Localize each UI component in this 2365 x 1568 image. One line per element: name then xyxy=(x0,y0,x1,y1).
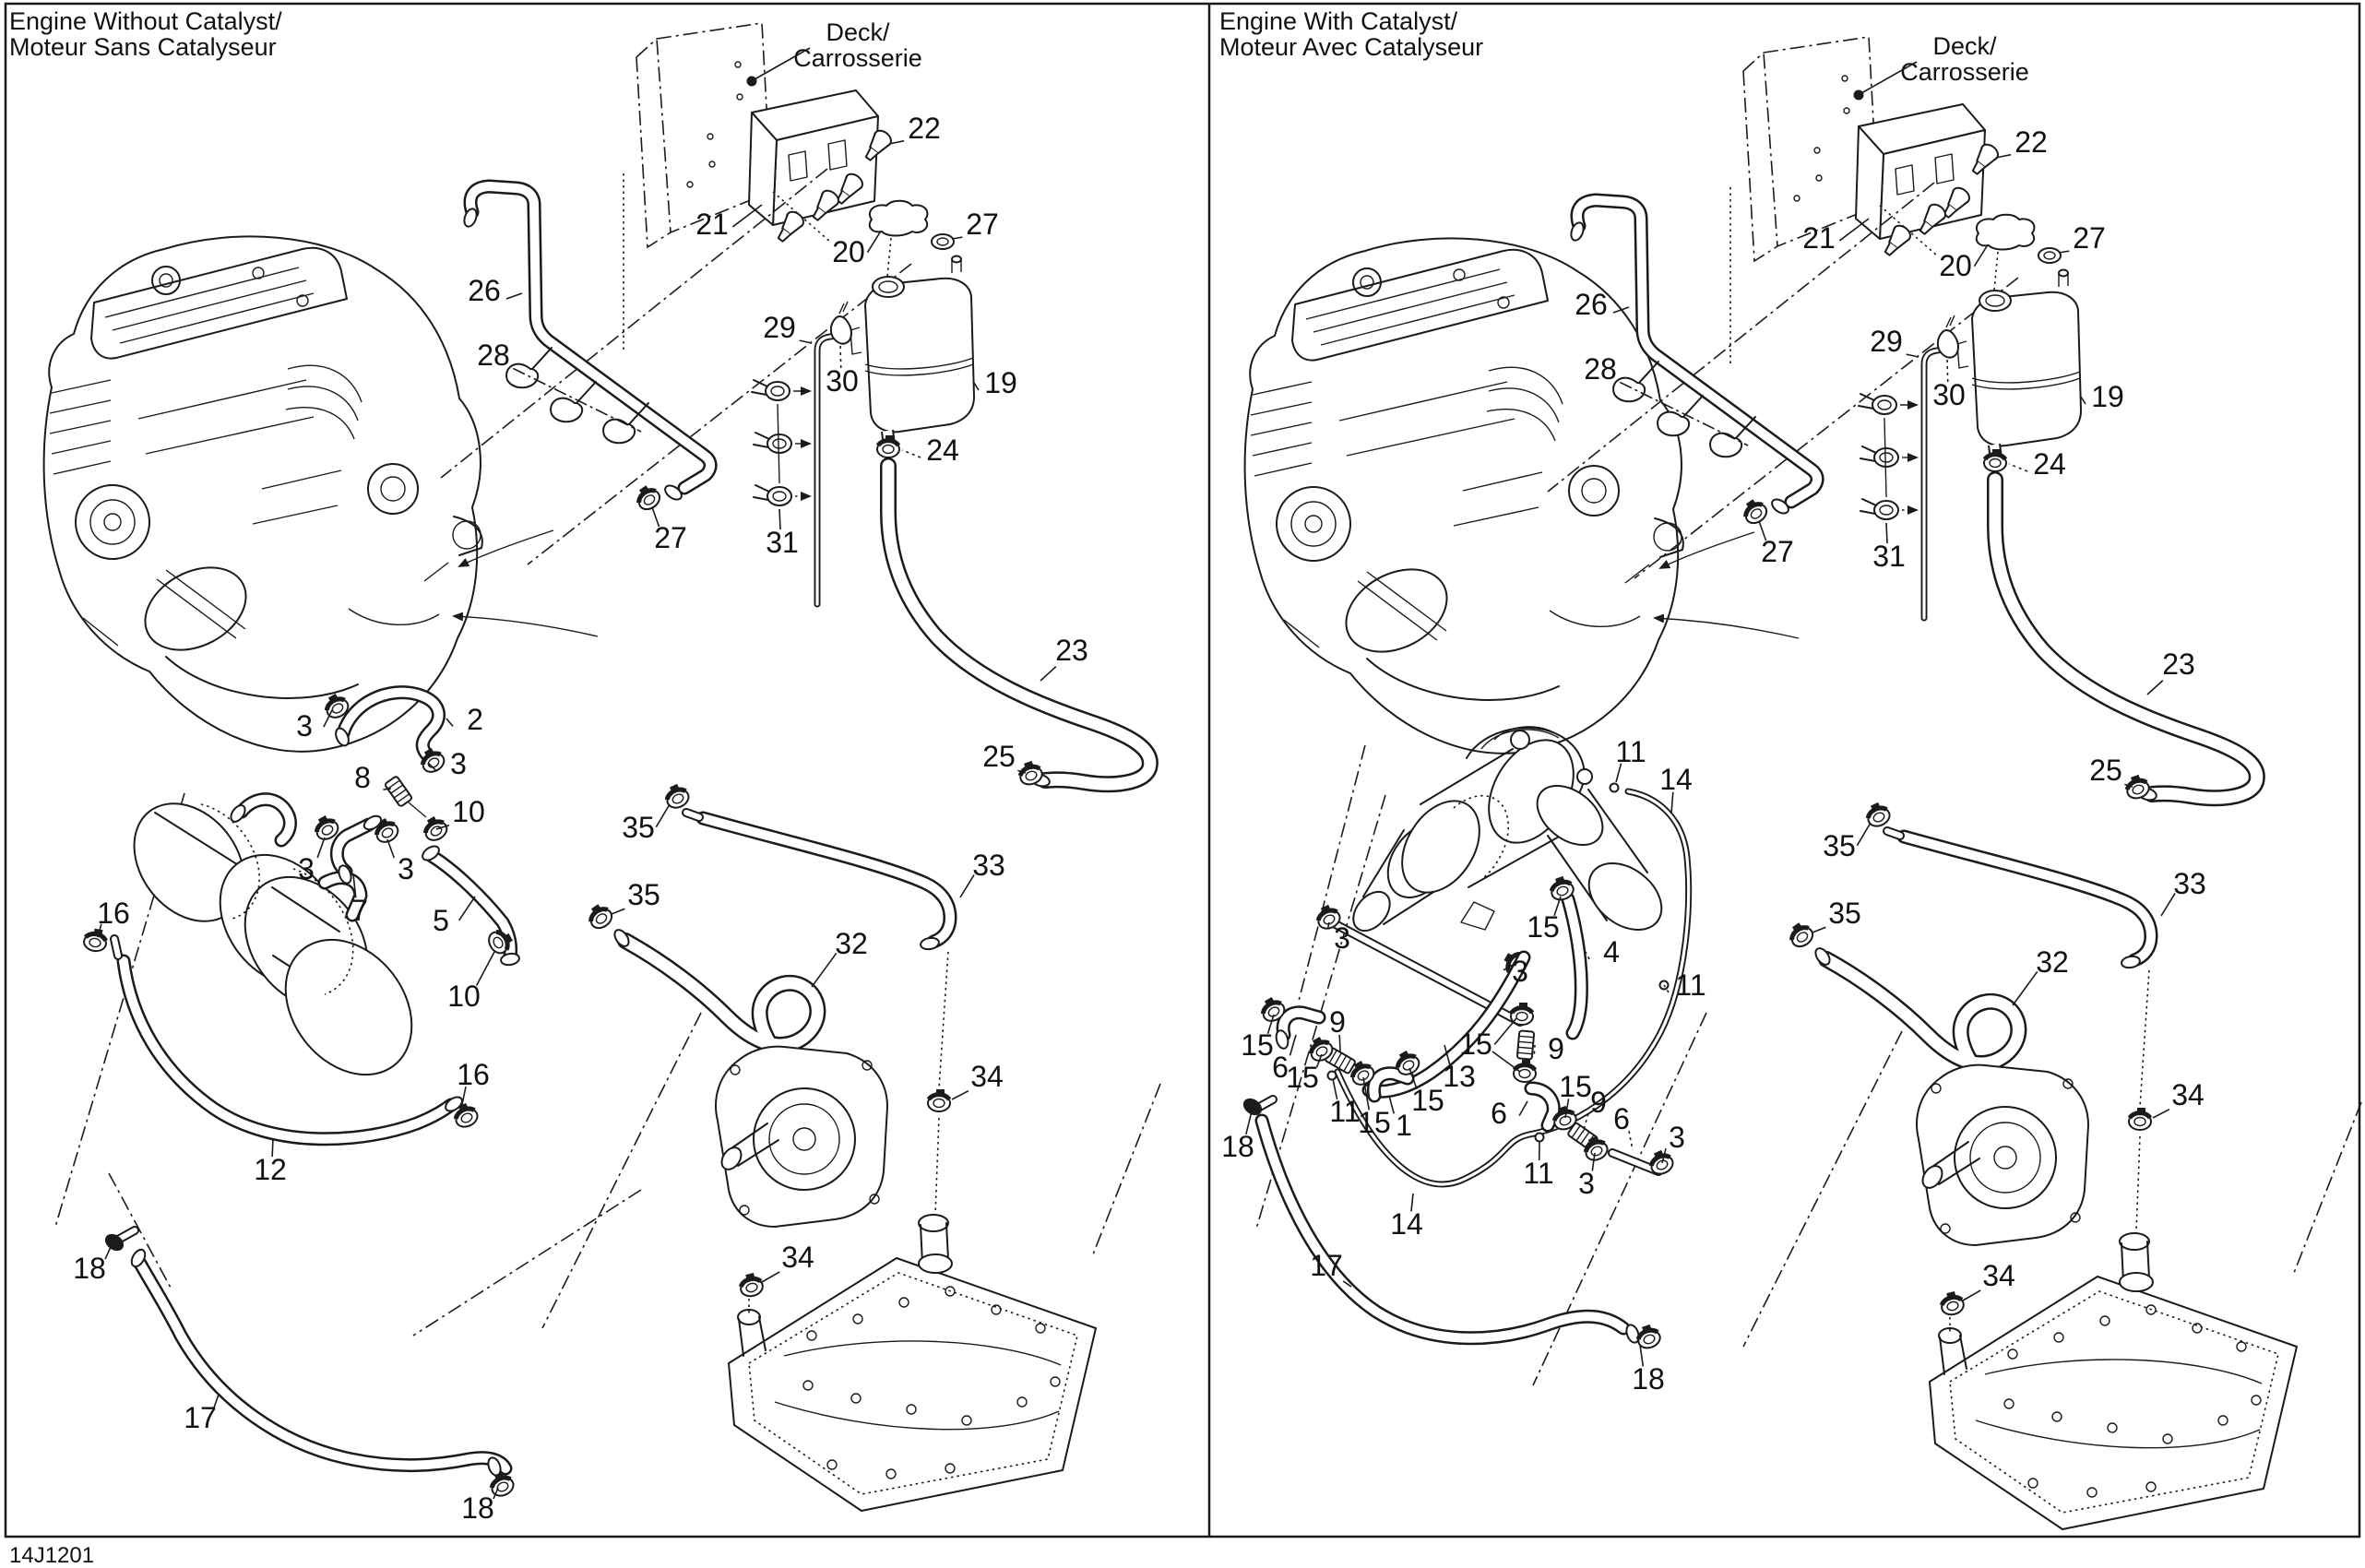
callout-left-10: 10 xyxy=(447,980,481,1013)
callout-right-30: 30 xyxy=(1932,378,1966,411)
callout-right-34: 34 xyxy=(2171,1078,2205,1111)
callout-right-6: 6 xyxy=(1491,1097,1507,1130)
deck-label-line1: Deck/ xyxy=(826,18,890,46)
callout-right-13: 13 xyxy=(1443,1060,1476,1093)
parts-diagram: Engine Without Catalyst/ Moteur Sans Cat… xyxy=(0,0,2365,1568)
callout-right-27: 27 xyxy=(1761,535,1794,568)
clip-11 xyxy=(1610,784,1619,792)
callout-left-33: 33 xyxy=(972,849,1005,882)
callout-left-18: 18 xyxy=(461,1491,494,1525)
callout-left-8: 8 xyxy=(354,761,371,794)
panel-title-line1: Engine Without Catalyst/ xyxy=(9,7,282,35)
callout-left-32: 32 xyxy=(835,927,868,960)
deck-label-line2: Carrosserie xyxy=(793,44,922,72)
callout-right-11: 11 xyxy=(1523,1157,1553,1190)
callout-left-10: 10 xyxy=(452,795,485,828)
callout-left-22: 22 xyxy=(908,112,941,145)
callout-right-1: 1 xyxy=(1396,1109,1412,1142)
callout-left-3: 3 xyxy=(296,709,313,742)
callout-right-4: 4 xyxy=(1603,935,1620,968)
callout-right-11: 11 xyxy=(1675,968,1705,1002)
callout-right-15: 15 xyxy=(1411,1084,1444,1117)
callout-right-32: 32 xyxy=(2036,945,2069,979)
callout-left-16: 16 xyxy=(457,1058,490,1091)
callout-right-34: 34 xyxy=(1982,1259,2015,1292)
callout-left-30: 30 xyxy=(826,364,859,398)
callout-right-9: 9 xyxy=(1548,1032,1564,1065)
callout-right-26: 26 xyxy=(1575,288,1608,321)
callout-left-3: 3 xyxy=(398,852,414,885)
callout-left-20: 20 xyxy=(832,235,865,268)
callout-right-28: 28 xyxy=(1584,352,1617,386)
callout-right-15: 15 xyxy=(1559,1070,1592,1103)
callout-right-15: 15 xyxy=(1286,1061,1319,1094)
callout-left-25: 25 xyxy=(982,740,1016,773)
callout-right-3: 3 xyxy=(1578,1167,1595,1200)
callout-right-27: 27 xyxy=(2073,221,2106,255)
callout-left-28: 28 xyxy=(477,339,510,372)
callout-right-15: 15 xyxy=(1358,1106,1391,1139)
panel-title-line1: Engine With Catalyst/ xyxy=(1219,7,1458,35)
callout-leader xyxy=(383,789,391,790)
callout-right-19: 19 xyxy=(2091,380,2124,413)
callout-right-35: 35 xyxy=(1823,829,1856,862)
figure-code: 14J1201 xyxy=(9,1543,94,1568)
callout-left-35: 35 xyxy=(622,811,655,844)
callout-left-24: 24 xyxy=(926,434,959,467)
callout-right-35: 35 xyxy=(1828,897,1861,930)
callout-right-14: 14 xyxy=(1390,1207,1423,1241)
callout-right-25: 25 xyxy=(2089,754,2122,787)
callout-left-3: 3 xyxy=(298,852,315,885)
callout-left-2: 2 xyxy=(467,703,483,736)
callout-left-23: 23 xyxy=(1055,634,1088,667)
callout-left-31: 31 xyxy=(766,526,799,559)
callout-left-29: 29 xyxy=(763,311,796,344)
callout-right-11: 11 xyxy=(1329,1095,1360,1128)
callout-left-7: 7 xyxy=(351,894,368,927)
callout-right-9: 9 xyxy=(1329,1005,1346,1039)
callout-right-23: 23 xyxy=(2162,647,2195,681)
callout-left-5: 5 xyxy=(433,904,449,937)
callout-left-26: 26 xyxy=(468,274,501,307)
callout-right-24: 24 xyxy=(2033,447,2066,481)
callout-right-17: 17 xyxy=(1310,1249,1343,1282)
callout-right-33: 33 xyxy=(2173,867,2206,900)
callout-left-12: 12 xyxy=(254,1153,287,1186)
callout-left-16: 16 xyxy=(97,897,130,930)
clip-11 xyxy=(1328,1072,1337,1080)
callout-right-18: 18 xyxy=(1221,1130,1254,1163)
callout-left-35: 35 xyxy=(627,878,660,911)
callout-left-34: 34 xyxy=(781,1241,814,1274)
callout-right-6: 6 xyxy=(1613,1102,1630,1135)
callout-right-31: 31 xyxy=(1872,540,1906,573)
callout-left-3: 3 xyxy=(450,747,467,780)
parts-diagram-page: Engine Without Catalyst/ Moteur Sans Cat… xyxy=(0,0,2365,1568)
callout-right-15: 15 xyxy=(1527,910,1560,944)
deck-label-line2: Carrosserie xyxy=(1900,58,2029,86)
callout-right-3: 3 xyxy=(1512,955,1528,988)
panel-title-line2: Moteur Avec Catalyseur xyxy=(1219,33,1483,61)
callout-right-3: 3 xyxy=(1669,1121,1685,1154)
callout-right-22: 22 xyxy=(2014,125,2048,159)
callout-left-17: 17 xyxy=(184,1401,217,1434)
callout-right-15: 15 xyxy=(1459,1028,1492,1061)
callout-left-27: 27 xyxy=(966,208,999,241)
callout-right-15: 15 xyxy=(1241,1028,1274,1062)
callout-left-19: 19 xyxy=(984,366,1017,399)
callout-right-9: 9 xyxy=(1590,1086,1607,1119)
callout-right-11: 11 xyxy=(1615,735,1646,768)
callout-right-3: 3 xyxy=(1334,921,1350,955)
callout-right-14: 14 xyxy=(1659,763,1693,796)
callout-right-29: 29 xyxy=(1870,325,1903,358)
callout-right-18: 18 xyxy=(1632,1362,1665,1396)
panel-title-line2: Moteur Sans Catalyseur xyxy=(9,33,277,61)
callout-left-18: 18 xyxy=(73,1252,106,1285)
callout-right-20: 20 xyxy=(1939,249,1972,282)
callout-left-34: 34 xyxy=(970,1060,1004,1093)
callout-left-21: 21 xyxy=(695,208,729,241)
deck-label-line1: Deck/ xyxy=(1932,32,1997,60)
callout-left-27: 27 xyxy=(654,521,687,554)
callout-right-21: 21 xyxy=(1802,221,1836,255)
fitting-9 xyxy=(1517,1030,1535,1059)
clip-11 xyxy=(1536,1134,1544,1142)
